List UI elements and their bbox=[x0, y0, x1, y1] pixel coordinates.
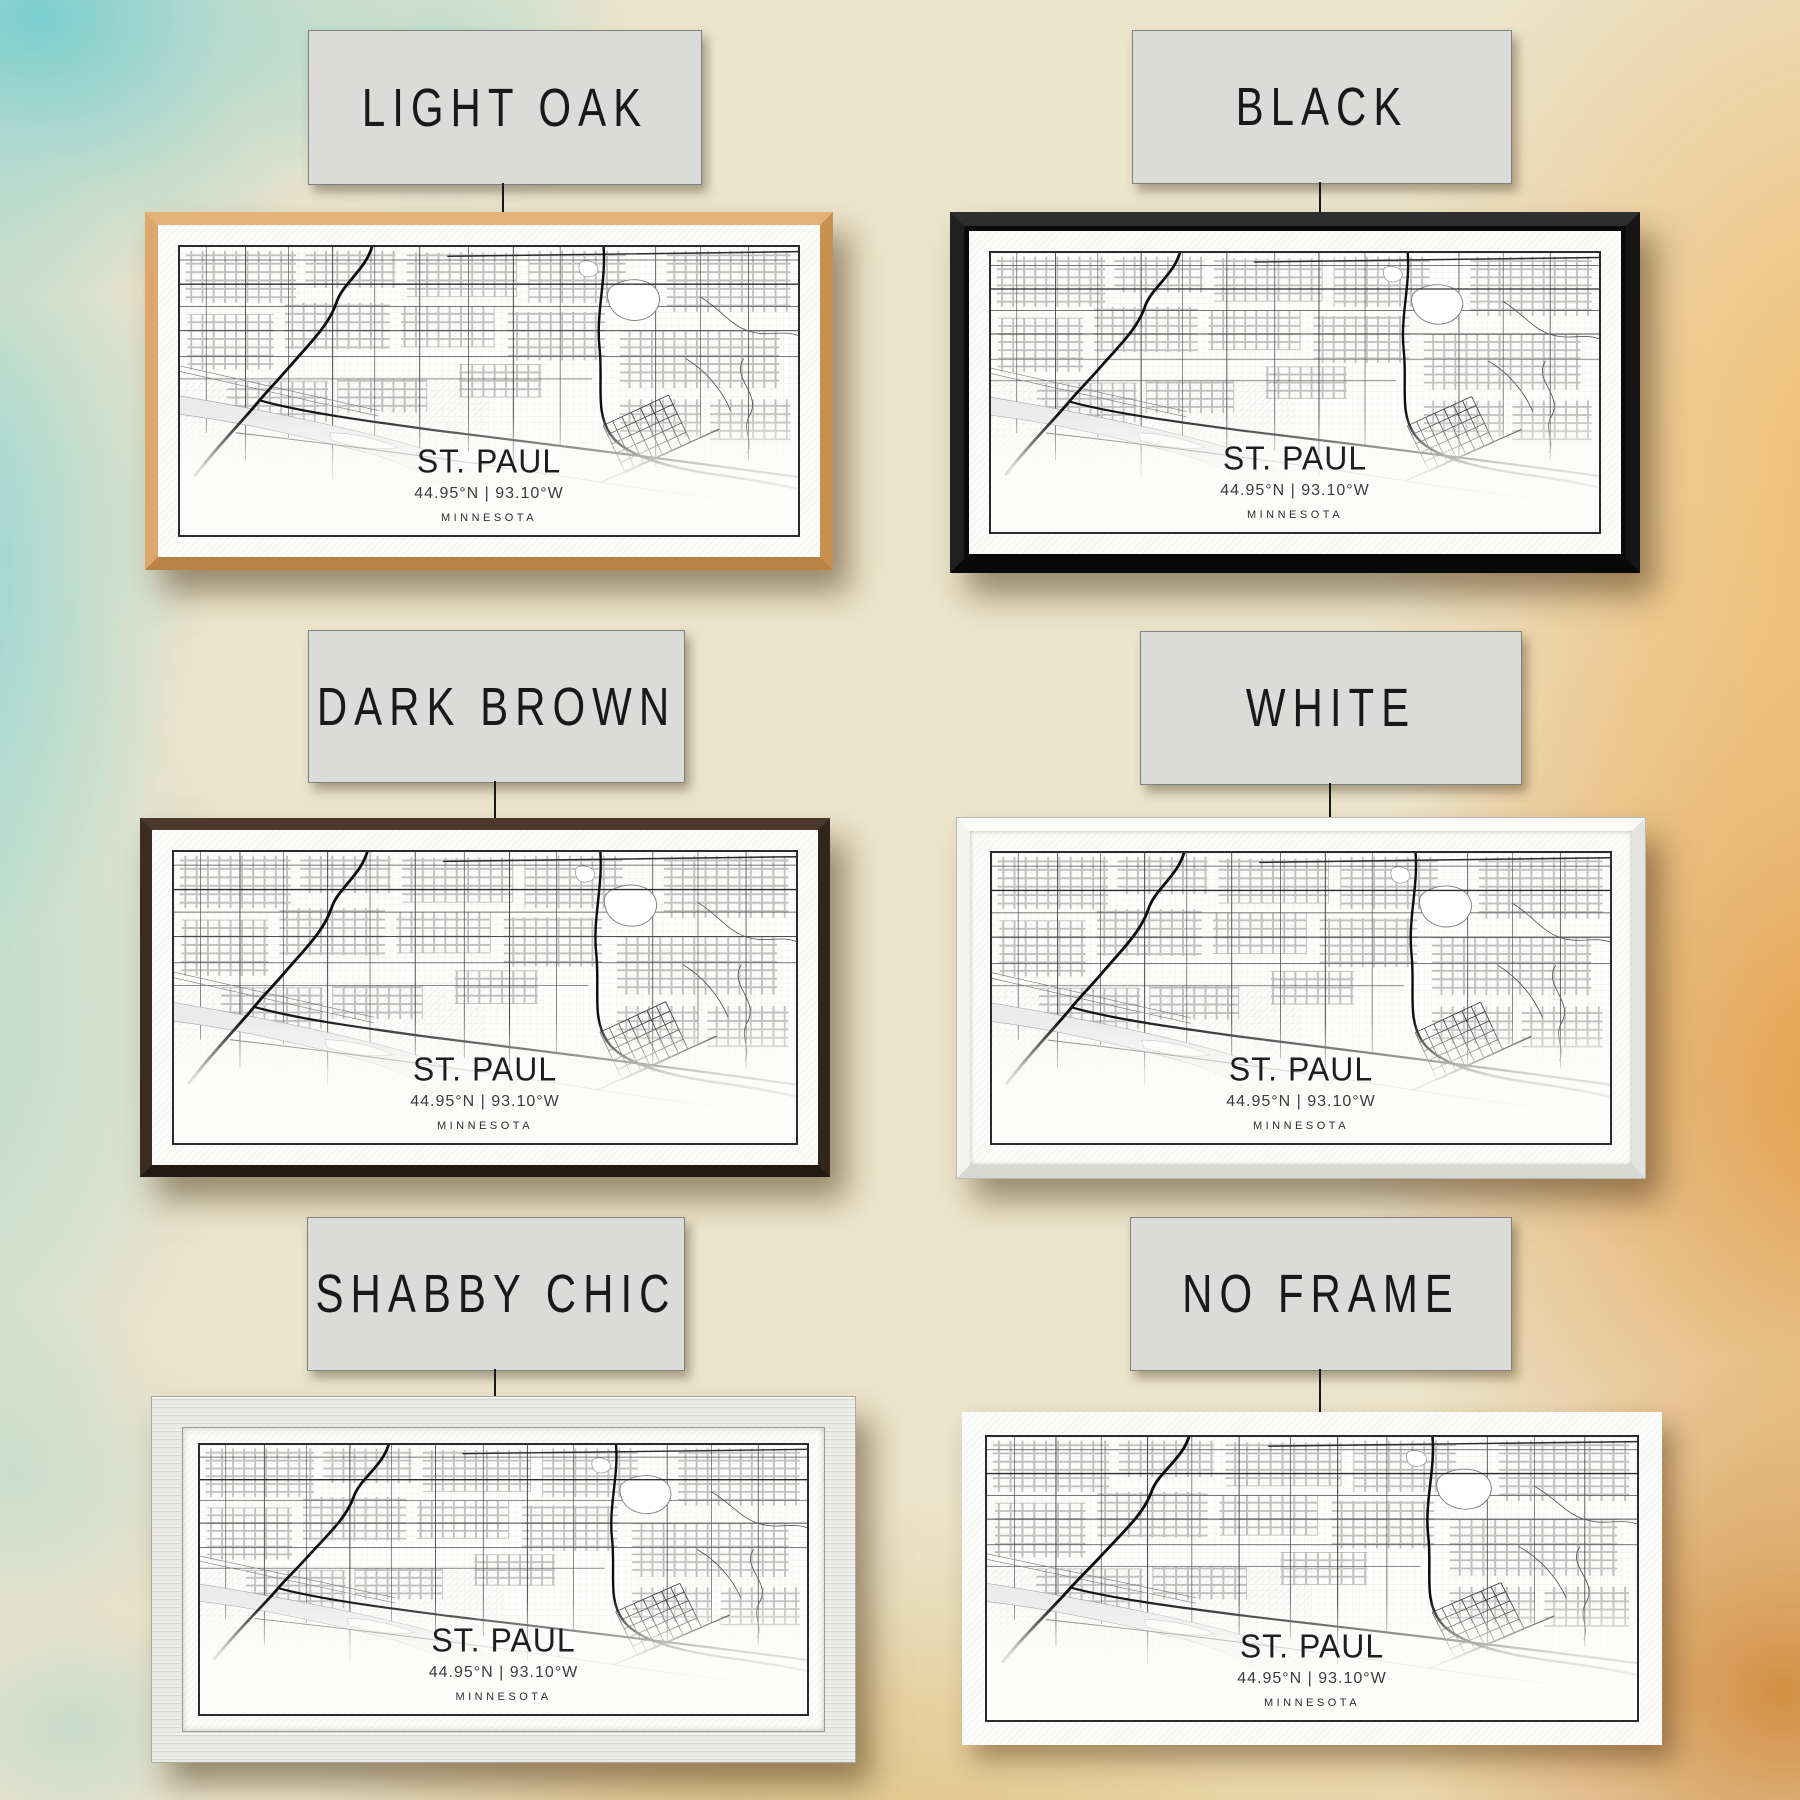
option-label-text: DARK BROWN bbox=[317, 676, 676, 737]
coordinates: 44.95°N | 93.10°W bbox=[174, 1093, 796, 1111]
option-label-dark-brown: DARK BROWN bbox=[308, 630, 685, 783]
framed-map-shabby-chic: ST. PAUL 44.95°N | 93.10°W MINNESOTA bbox=[152, 1397, 855, 1762]
connector-line bbox=[1319, 182, 1321, 213]
option-label-text: SHABBY CHIC bbox=[316, 1263, 677, 1324]
option-label-text: LIGHT OAK bbox=[362, 77, 648, 138]
connector-line bbox=[494, 781, 496, 819]
option-label-text: BLACK bbox=[1236, 76, 1409, 137]
map-area: ST. PAUL 44.95°N | 93.10°W MINNESOTA bbox=[172, 850, 798, 1145]
option-label-white: WHITE bbox=[1140, 631, 1522, 785]
option-label-black: BLACK bbox=[1132, 30, 1512, 184]
state-name: MINNESOTA bbox=[200, 1691, 807, 1703]
option-label-no-frame: NO FRAME bbox=[1130, 1217, 1512, 1371]
city-name: ST. PAUL bbox=[987, 1629, 1637, 1663]
option-label-text: NO FRAME bbox=[1182, 1263, 1460, 1324]
state-name: MINNESOTA bbox=[991, 509, 1599, 521]
coordinates: 44.95°N | 93.10°W bbox=[200, 1664, 807, 1682]
canvas-paper: ST. PAUL 44.95°N | 93.10°W MINNESOTA bbox=[158, 225, 820, 557]
print-caption: ST. PAUL 44.95°N | 93.10°W MINNESOTA bbox=[200, 1624, 807, 1703]
print-caption: ST. PAUL 44.95°N | 93.10°W MINNESOTA bbox=[180, 445, 798, 524]
state-name: MINNESOTA bbox=[180, 512, 798, 524]
map-area: ST. PAUL 44.95°N | 93.10°W MINNESOTA bbox=[198, 1443, 809, 1716]
connector-line bbox=[1329, 783, 1331, 819]
canvas-paper: ST. PAUL 44.95°N | 93.10°W MINNESOTA bbox=[970, 831, 1632, 1165]
city-name: ST. PAUL bbox=[174, 1052, 796, 1086]
state-name: MINNESOTA bbox=[174, 1120, 796, 1132]
connector-line bbox=[494, 1369, 496, 1398]
canvas-paper: ST. PAUL 44.95°N | 93.10°W MINNESOTA bbox=[962, 1412, 1662, 1745]
canvas-paper: ST. PAUL 44.95°N | 93.10°W MINNESOTA bbox=[182, 1427, 825, 1732]
framed-map-dark-brown: ST. PAUL 44.95°N | 93.10°W MINNESOTA bbox=[140, 818, 830, 1177]
coordinates: 44.95°N | 93.10°W bbox=[180, 485, 798, 503]
connector-line bbox=[502, 183, 504, 213]
coordinates: 44.95°N | 93.10°W bbox=[991, 482, 1599, 500]
framed-map-light-oak: ST. PAUL 44.95°N | 93.10°W MINNESOTA bbox=[145, 212, 833, 570]
print-caption: ST. PAUL 44.95°N | 93.10°W MINNESOTA bbox=[991, 442, 1599, 521]
state-name: MINNESOTA bbox=[987, 1697, 1637, 1709]
framed-map-black: ST. PAUL 44.95°N | 93.10°W MINNESOTA bbox=[950, 212, 1640, 573]
canvas-paper: ST. PAUL 44.95°N | 93.10°W MINNESOTA bbox=[969, 231, 1621, 554]
print-caption: ST. PAUL 44.95°N | 93.10°W MINNESOTA bbox=[174, 1053, 796, 1132]
option-label-text: WHITE bbox=[1246, 677, 1416, 738]
city-name: ST. PAUL bbox=[200, 1623, 807, 1657]
city-name: ST. PAUL bbox=[180, 444, 798, 478]
map-area: ST. PAUL 44.95°N | 93.10°W MINNESOTA bbox=[989, 251, 1601, 534]
product-mockup-wall: LIGHT OAK BLACK ST. PAUL 44.95°N | 93.10… bbox=[0, 0, 1800, 1800]
print-caption: ST. PAUL 44.95°N | 93.10°W MINNESOTA bbox=[992, 1053, 1610, 1132]
city-name: ST. PAUL bbox=[991, 441, 1599, 475]
option-label-shabby-chic: SHABBY CHIC bbox=[307, 1217, 685, 1371]
print-caption: ST. PAUL 44.95°N | 93.10°W MINNESOTA bbox=[987, 1630, 1637, 1709]
framed-map-white: ST. PAUL 44.95°N | 93.10°W MINNESOTA bbox=[957, 818, 1645, 1178]
connector-line bbox=[1319, 1369, 1321, 1413]
city-name: ST. PAUL bbox=[992, 1052, 1610, 1086]
map-area: ST. PAUL 44.95°N | 93.10°W MINNESOTA bbox=[985, 1435, 1639, 1722]
coordinates: 44.95°N | 93.10°W bbox=[992, 1093, 1610, 1111]
state-name: MINNESOTA bbox=[992, 1120, 1610, 1132]
option-label-light-oak: LIGHT OAK bbox=[308, 30, 702, 185]
coordinates: 44.95°N | 93.10°W bbox=[987, 1670, 1637, 1688]
map-area: ST. PAUL 44.95°N | 93.10°W MINNESOTA bbox=[990, 851, 1612, 1145]
canvas-paper: ST. PAUL 44.95°N | 93.10°W MINNESOTA bbox=[152, 830, 818, 1165]
map-area: ST. PAUL 44.95°N | 93.10°W MINNESOTA bbox=[178, 245, 800, 537]
unframed-map-print: ST. PAUL 44.95°N | 93.10°W MINNESOTA bbox=[962, 1412, 1662, 1745]
